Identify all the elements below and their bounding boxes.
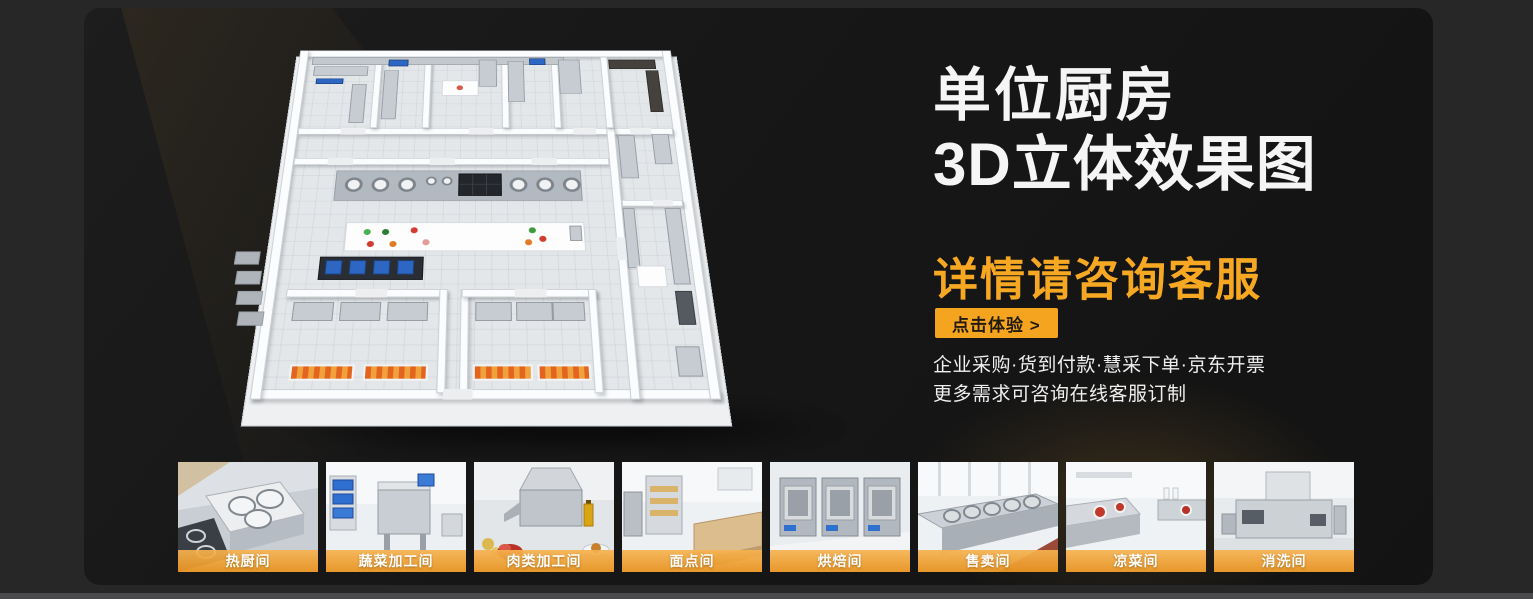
serving-counter	[339, 302, 381, 321]
service-notes-line2: 更多需求可咨询在线客服订制	[933, 380, 1265, 409]
food-tray-warmer	[288, 364, 355, 380]
gallery-item-label: 凉菜间	[1066, 550, 1206, 572]
gallery-item-vegetable-processing[interactable]: 蔬菜加工间	[326, 462, 466, 572]
storage-rack	[508, 61, 525, 102]
wok-burner	[510, 177, 528, 191]
steel-cabinet	[558, 60, 582, 94]
food-item	[527, 226, 539, 235]
door-opening	[531, 158, 557, 165]
gallery-item-serving[interactable]: 售卖间	[918, 462, 1058, 572]
gallery-item-cold-dish[interactable]: 凉菜间	[1066, 462, 1206, 572]
headline-line1: 单位厨房	[933, 64, 1177, 128]
fryer-unit	[324, 260, 342, 274]
meat-item	[455, 84, 465, 92]
room-gallery: 热厨间 蔬菜加工间	[178, 462, 1354, 572]
gallery-item-baking[interactable]: 烘焙间	[770, 462, 910, 572]
fryer-unit	[397, 260, 414, 274]
island-table	[636, 266, 668, 288]
exhaust-hood	[312, 57, 565, 65]
next-section-edge	[0, 593, 1533, 599]
dark-cabinet	[608, 60, 656, 69]
headline-line2: 3D立体效果图	[933, 132, 1317, 198]
door-opening	[340, 128, 365, 135]
gallery-item-label: 肉类加工间	[474, 550, 614, 572]
food-tray-warmer	[473, 364, 534, 380]
door-opening	[653, 200, 674, 207]
order-terminal	[569, 226, 582, 241]
door-opening	[327, 158, 353, 165]
door-opening	[573, 128, 596, 135]
serving-counter	[552, 302, 585, 321]
serving-counter	[387, 302, 429, 321]
food-item	[537, 234, 549, 243]
serving-room-wall	[459, 289, 469, 393]
wok-burner	[563, 177, 582, 191]
gallery-item-washing[interactable]: 消洗间	[1214, 462, 1354, 572]
exterior-crate	[235, 271, 262, 285]
steel-cabinet	[675, 346, 703, 376]
serving-counter	[291, 302, 334, 321]
exterior-crate	[236, 311, 264, 325]
gallery-item-label: 面点间	[622, 550, 762, 572]
door-opening	[443, 389, 473, 400]
blue-machine	[388, 60, 408, 67]
cta-button[interactable]: 点击体验 >	[935, 308, 1058, 338]
serving-counter	[516, 302, 553, 321]
outer-wall-front	[250, 389, 722, 400]
gallery-item-label: 消洗间	[1214, 550, 1354, 572]
subtitle: 详情请咨询客服	[933, 243, 1262, 308]
wok-burner	[536, 177, 554, 191]
gallery-item-label: 热厨间	[178, 550, 318, 572]
exterior-crate	[236, 291, 264, 305]
kitchen-banner-page: 单位厨房 3D立体效果图 详情请咨询客服 点击体验 > 企业采购·货到付款·慧采…	[0, 0, 1533, 599]
food-tray-warmer	[537, 364, 591, 380]
service-notes-line1: 企业采购·货到付款·慧采下单·京东开票	[933, 351, 1265, 380]
kitchen-3d-floorplan	[228, 20, 888, 450]
blue-machine	[529, 58, 545, 65]
exterior-crate	[234, 251, 261, 264]
gallery-item-label: 蔬菜加工间	[326, 550, 466, 572]
door-opening	[430, 158, 455, 165]
service-notes: 企业采购·货到付款·慧采下单·京东开票 更多需求可咨询在线客服订制	[933, 351, 1265, 409]
blue-cookers	[316, 78, 344, 83]
door-opening	[469, 128, 494, 135]
fryer-unit	[373, 260, 391, 274]
gallery-item-label: 烘焙间	[770, 550, 910, 572]
gallery-item-label: 售卖间	[918, 550, 1058, 572]
steel-counter	[313, 66, 368, 75]
gallery-item-meat-processing[interactable]: 肉类加工间	[474, 462, 614, 572]
food-item	[523, 238, 535, 248]
gallery-item-pastry[interactable]: 面点间	[622, 462, 762, 572]
door-opening	[355, 289, 388, 297]
gallery-item-hot-kitchen[interactable]: 热厨间	[178, 462, 318, 572]
door-opening	[515, 289, 547, 297]
food-tray-warmer	[362, 364, 428, 380]
prep-counter	[343, 222, 586, 251]
serving-counter	[475, 302, 512, 321]
steel-cabinet	[479, 60, 497, 87]
induction-hob	[458, 174, 502, 196]
fryer-unit	[349, 260, 367, 274]
floorplan	[250, 50, 722, 399]
door-opening	[630, 128, 652, 135]
